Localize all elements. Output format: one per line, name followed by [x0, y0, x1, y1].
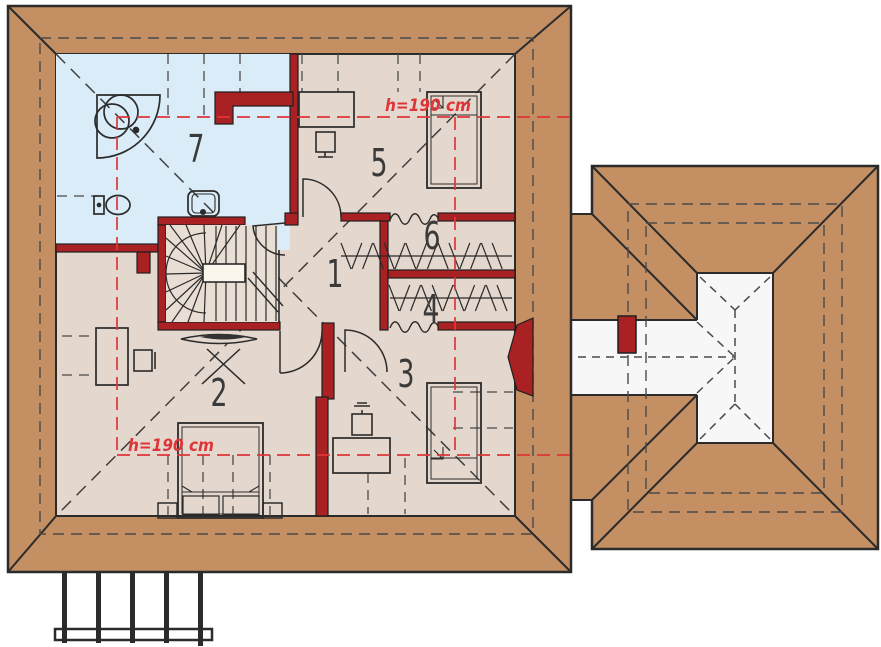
- bathtub-drain: [134, 128, 139, 133]
- room-number-3: 3: [398, 352, 415, 396]
- pergola-post: [164, 572, 169, 643]
- wall-hall-stub: [322, 323, 334, 399]
- wall-room5-south-a: [341, 213, 390, 221]
- pergola-post: [130, 572, 135, 643]
- room-number-5: 5: [371, 141, 388, 185]
- wall-closet-divider: [388, 270, 515, 278]
- main-building: [8, 6, 571, 572]
- stair-wall-top: [158, 217, 245, 225]
- stair-landing: [203, 264, 245, 282]
- floor-plan-canvas: 1 2 3 4 5 6 7 h=190 cm h=190 cm: [0, 0, 881, 647]
- room-number-7: 7: [188, 127, 205, 171]
- room-number-2: 2: [211, 371, 228, 415]
- floor-plan-page: 1 2 3 4 5 6 7 h=190 cm h=190 cm: [0, 0, 881, 647]
- wall-room5-south-b: [438, 213, 515, 221]
- pergola-post: [96, 572, 101, 643]
- staircase: [166, 225, 283, 322]
- height-annotation-bottom: h=190 cm: [128, 436, 214, 456]
- room-number-6: 6: [424, 214, 441, 258]
- stair-wall-left: [158, 225, 166, 322]
- sink-drain: [201, 210, 205, 214]
- stair-wall-bottom: [158, 322, 280, 330]
- pergola-posts: [62, 572, 203, 646]
- room-number-4: 4: [423, 287, 440, 331]
- wall-bath-south: [56, 244, 158, 252]
- pergola: [55, 572, 212, 646]
- height-annotation-top: h=190 cm: [385, 96, 471, 116]
- room-number-1: 1: [327, 252, 344, 296]
- wall-closet4-south: [438, 322, 515, 330]
- pergola-post: [62, 572, 67, 643]
- wall-bath-room5: [290, 54, 298, 218]
- wall-room2-room3: [316, 397, 328, 516]
- wall-closets-west: [380, 221, 388, 330]
- wall-door-jamb: [285, 213, 298, 225]
- pergola-post: [198, 572, 203, 646]
- wall-pillar: [137, 252, 150, 273]
- garage-chimney: [618, 316, 636, 353]
